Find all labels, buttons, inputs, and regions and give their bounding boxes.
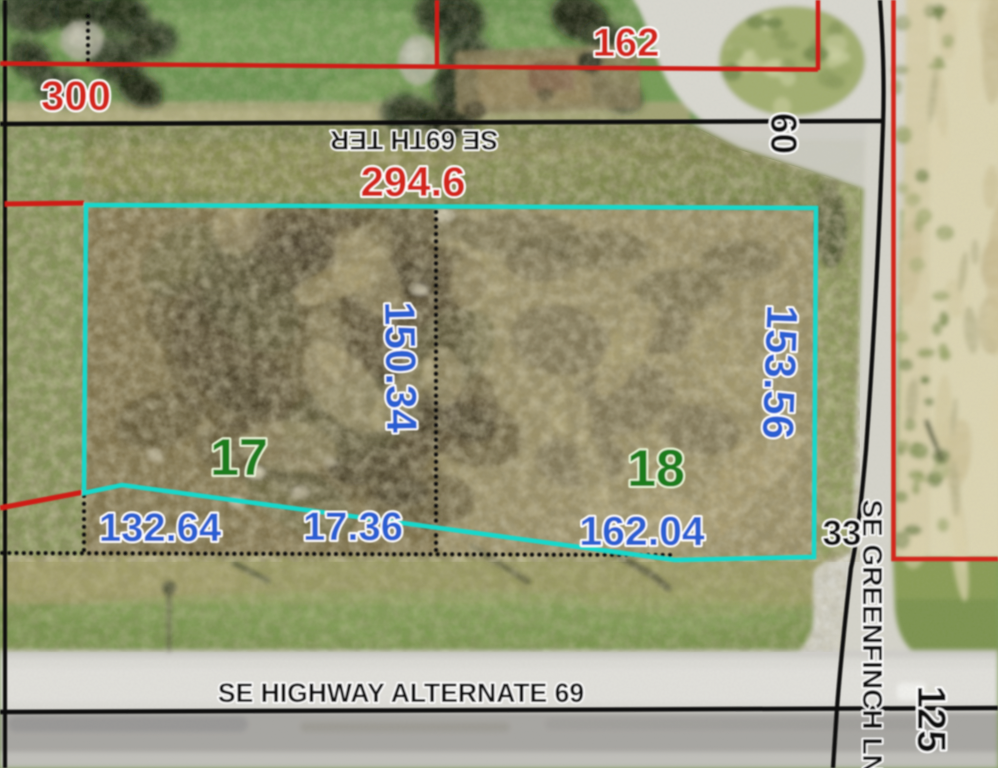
svg-text:SE HIGHWAY ALTERNATE 69: SE HIGHWAY ALTERNATE 69: [218, 678, 584, 708]
svg-text:150.34: 150.34: [375, 301, 425, 433]
svg-text:SE GREENFINCH LN: SE GREENFINCH LN: [857, 499, 888, 768]
svg-text:132.64: 132.64: [99, 506, 222, 550]
svg-text:SE 69TH TER: SE 69TH TER: [330, 125, 498, 155]
svg-text:17.36: 17.36: [303, 505, 403, 549]
svg-text:162.04: 162.04: [579, 508, 705, 554]
svg-text:153.56: 153.56: [753, 304, 807, 440]
svg-text:60: 60: [763, 113, 804, 154]
svg-text:125: 125: [909, 686, 953, 753]
svg-text:17: 17: [210, 429, 268, 487]
svg-text:300: 300: [41, 72, 111, 119]
svg-text:18: 18: [627, 440, 685, 498]
svg-text:33: 33: [823, 514, 862, 553]
svg-text:294.6: 294.6: [360, 158, 465, 205]
svg-text:162: 162: [593, 21, 660, 65]
